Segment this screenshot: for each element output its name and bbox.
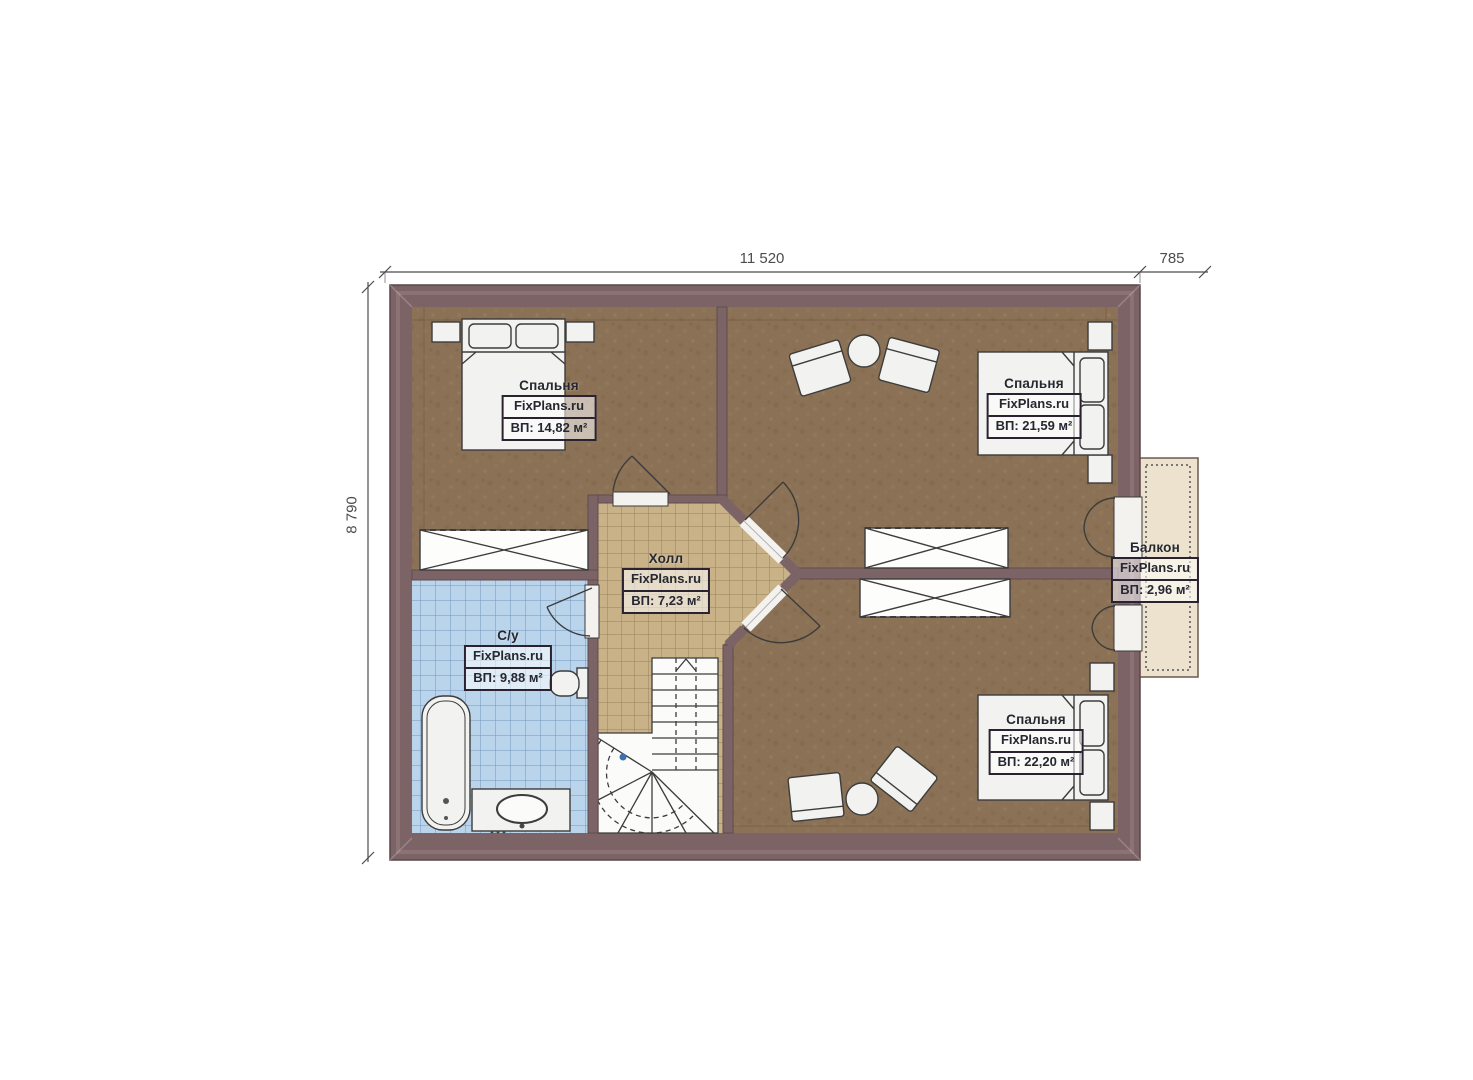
room-info-box: FixPlans.ru ВП: 7,23 м² <box>622 568 710 614</box>
dimension-left-height: 8 790 <box>344 496 361 534</box>
watermark-text: FixPlans.ru <box>466 647 550 667</box>
floor-plan-canvas: Спальня FixPlans.ru ВП: 14,82 м² Спальня… <box>0 0 1473 1080</box>
room-area-value: ВП: 22,20 м² <box>991 751 1082 773</box>
room-area-value: ВП: 9,88 м² <box>466 667 550 689</box>
room-label-balcony: Балкон FixPlans.ru ВП: 2,96 м² <box>1111 540 1199 603</box>
sink-vanity-icon <box>472 789 570 834</box>
dimension-top-width: 11 520 <box>740 250 785 267</box>
side-table-icon <box>846 783 878 815</box>
walkline-start-dot <box>620 754 627 761</box>
wardrobe-bedroom-br <box>860 579 1010 617</box>
room-label-bedroom-bottom-right: Спальня FixPlans.ru ВП: 22,20 м² <box>989 712 1084 775</box>
nightstand-icon <box>1088 322 1112 350</box>
wardrobe-bedroom-tl <box>420 530 588 570</box>
room-area-value: ВП: 2,96 м² <box>1113 579 1197 601</box>
armchair-icon <box>788 772 844 821</box>
room-label-bedroom-top-left: Спальня FixPlans.ru ВП: 14,82 м² <box>502 378 597 441</box>
nightstand-icon <box>1090 663 1114 691</box>
nightstand-icon <box>1088 455 1112 483</box>
room-info-box: FixPlans.ru ВП: 22,20 м² <box>989 729 1084 775</box>
room-label-bedroom-top-right: Спальня FixPlans.ru ВП: 21,59 м² <box>987 376 1082 439</box>
room-name: Холл <box>649 551 684 566</box>
room-info-box: FixPlans.ru ВП: 21,59 м² <box>987 393 1082 439</box>
nightstand-icon <box>432 322 460 342</box>
room-area-value: ВП: 21,59 м² <box>989 415 1080 437</box>
toilet-icon <box>550 668 588 698</box>
room-name: Спальня <box>1004 376 1064 391</box>
wardrobe-bedroom-tr <box>865 528 1008 568</box>
room-label-bathroom: С/у FixPlans.ru ВП: 9,88 м² <box>464 628 552 691</box>
room-name: С/у <box>497 628 519 643</box>
room-info-box: FixPlans.ru ВП: 9,88 м² <box>464 645 552 691</box>
dimension-balcony-width: 785 <box>1159 250 1184 267</box>
room-name: Спальня <box>519 378 579 393</box>
watermark-text: FixPlans.ru <box>504 397 595 417</box>
watermark-text: FixPlans.ru <box>624 570 708 590</box>
nightstand-icon <box>566 322 594 342</box>
nightstand-icon <box>1090 802 1114 830</box>
floor-plan-drawing <box>0 0 1473 1080</box>
watermark-text: FixPlans.ru <box>989 395 1080 415</box>
room-label-hall: Холл FixPlans.ru ВП: 7,23 м² <box>622 551 710 614</box>
dimension-line-left <box>362 281 374 864</box>
side-table-icon <box>848 335 880 367</box>
dimension-line-top <box>379 266 1211 283</box>
bathtub-icon <box>422 696 470 830</box>
room-area-value: ВП: 7,23 м² <box>624 590 708 612</box>
room-name: Балкон <box>1130 540 1180 555</box>
watermark-text: FixPlans.ru <box>991 731 1082 751</box>
room-info-box: FixPlans.ru ВП: 2,96 м² <box>1111 557 1199 603</box>
watermark-text: FixPlans.ru <box>1113 559 1197 579</box>
room-area-value: ВП: 14,82 м² <box>504 417 595 439</box>
room-name: Спальня <box>1006 712 1066 727</box>
room-info-box: FixPlans.ru ВП: 14,82 м² <box>502 395 597 441</box>
